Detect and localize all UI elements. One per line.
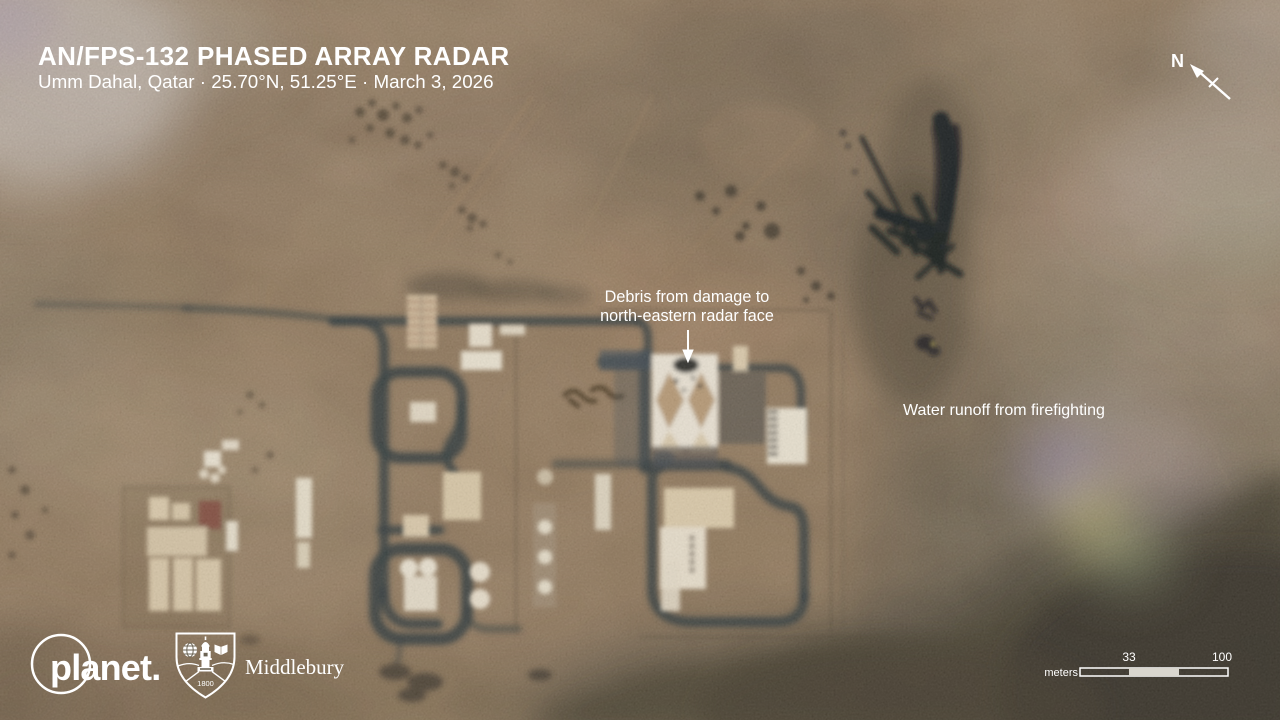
svg-text:1800: 1800: [197, 679, 214, 688]
svg-text:N: N: [1171, 51, 1184, 71]
svg-text:Umm Dahal, Qatar · 25.70°N, 51: Umm Dahal, Qatar · 25.70°N, 51.25°E · Ma…: [38, 71, 494, 92]
svg-text:meters: meters: [1044, 667, 1078, 679]
svg-text:100: 100: [1212, 650, 1232, 664]
svg-text:Water runoff from firefighting: Water runoff from firefighting: [903, 402, 1105, 419]
svg-text:Debris from damage to: Debris from damage to: [605, 288, 770, 306]
svg-text:planet.: planet.: [50, 647, 160, 688]
svg-text:north-eastern radar face: north-eastern radar face: [600, 307, 774, 325]
svg-text:33: 33: [1122, 650, 1136, 664]
svg-text:AN/FPS-132 PHASED ARRAY RADAR: AN/FPS-132 PHASED ARRAY RADAR: [38, 41, 510, 71]
svg-text:Middlebury: Middlebury: [245, 655, 345, 679]
